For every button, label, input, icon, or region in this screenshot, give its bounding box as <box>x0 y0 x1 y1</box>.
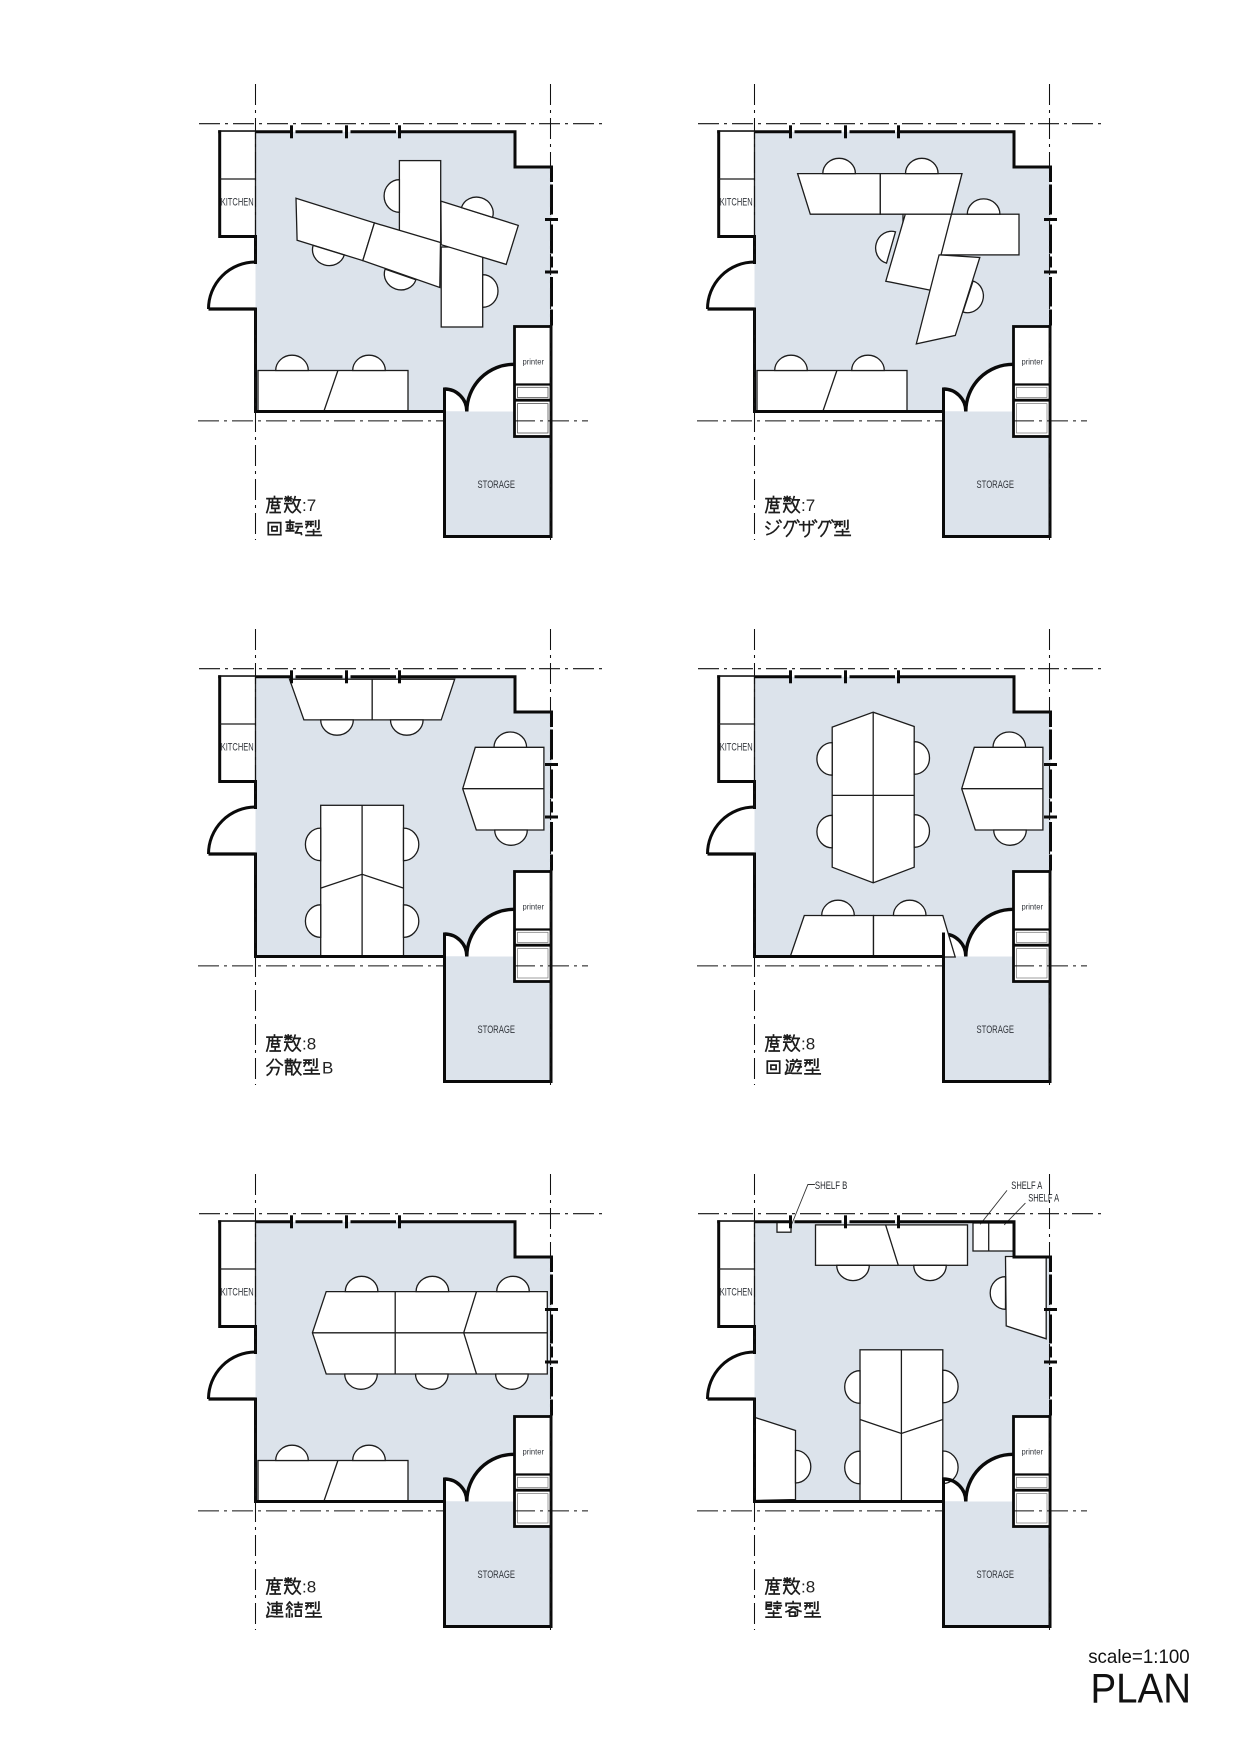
svg-text:KITCHEN: KITCHEN <box>221 197 254 209</box>
svg-text:printer: printer <box>1022 358 1044 367</box>
svg-text:printer: printer <box>523 1448 545 1457</box>
svg-text::7: :7 <box>302 496 316 515</box>
svg-text:SHELF B: SHELF B <box>815 1180 848 1192</box>
svg-text:KITCHEN: KITCHEN <box>221 1287 254 1299</box>
svg-text:KITCHEN: KITCHEN <box>221 742 254 754</box>
svg-text:SHELF A: SHELF A <box>1011 1180 1042 1192</box>
svg-text:STORAGE: STORAGE <box>478 1024 516 1036</box>
svg-text::8: :8 <box>801 1578 815 1597</box>
svg-text:STORAGE: STORAGE <box>977 1569 1015 1581</box>
svg-text:SHELF A: SHELF A <box>1028 1193 1059 1205</box>
svg-text::8: :8 <box>801 1035 815 1054</box>
svg-text:STORAGE: STORAGE <box>977 479 1015 491</box>
svg-text:B: B <box>322 1059 333 1078</box>
svg-text:STORAGE: STORAGE <box>977 1024 1015 1036</box>
svg-text:printer: printer <box>523 358 545 367</box>
svg-text:printer: printer <box>1022 903 1044 912</box>
svg-text:KITCHEN: KITCHEN <box>720 197 753 209</box>
svg-text::7: :7 <box>801 496 815 515</box>
svg-text:printer: printer <box>1022 1448 1044 1457</box>
svg-text:PLAN: PLAN <box>1091 1665 1192 1712</box>
svg-text:STORAGE: STORAGE <box>478 1569 516 1581</box>
svg-text:STORAGE: STORAGE <box>478 479 516 491</box>
svg-text::8: :8 <box>302 1035 316 1054</box>
svg-text:KITCHEN: KITCHEN <box>720 742 753 754</box>
svg-text::8: :8 <box>302 1578 316 1597</box>
svg-text:printer: printer <box>523 903 545 912</box>
svg-text:KITCHEN: KITCHEN <box>720 1287 753 1299</box>
